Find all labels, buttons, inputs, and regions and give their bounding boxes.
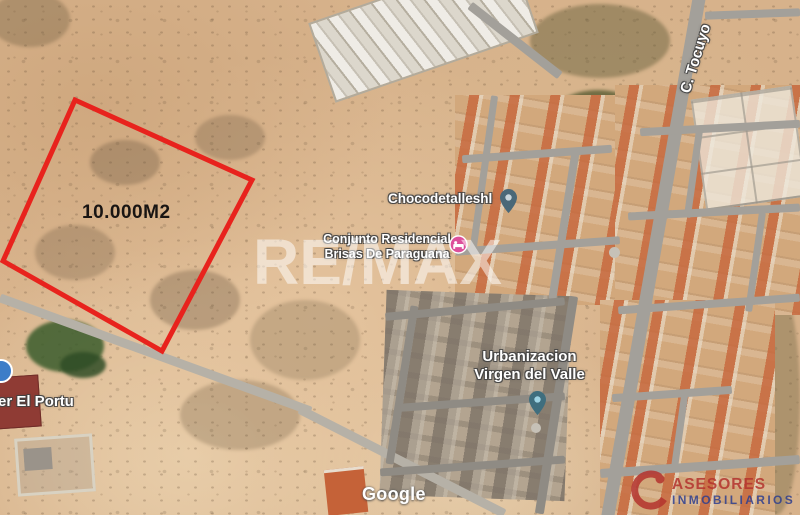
roundabout <box>609 247 620 258</box>
place-label-urbanizacion[interactable]: Urbanizacion Virgen del Valle <box>462 348 597 384</box>
agency-name-line1: ASESORES <box>672 477 795 493</box>
scrub-patch <box>35 225 115 280</box>
place-circle-icon[interactable] <box>0 358 14 384</box>
place-label-el-portu[interactable]: er El Portu <box>0 393 74 410</box>
industrial-lots <box>691 85 800 210</box>
scrub-patch <box>195 115 265 160</box>
satellite-map[interactable]: 10.000M2 RE/MAX Chocodetalleshl Conjunto… <box>0 0 800 515</box>
agency-name-line2: INMOBILIARIOS <box>672 493 795 507</box>
place-label-line2: Virgen del Valle <box>462 366 597 384</box>
agency-logo-text: ASESORES INMOBILIARIOS <box>672 477 795 507</box>
scrub-patch <box>90 140 160 185</box>
agency-logo-arc-icon <box>628 468 668 514</box>
place-pin-icon[interactable] <box>500 188 517 214</box>
google-logo: Google <box>362 484 426 505</box>
scrub-patch <box>180 380 300 450</box>
scrub-patch <box>250 300 360 380</box>
parcel-area-label: 10.000M2 <box>82 202 171 224</box>
vegetation-patch <box>60 352 106 378</box>
agency-logo: ASESORES INMOBILIARIOS <box>628 468 795 514</box>
place-pin-icon[interactable] <box>529 390 546 416</box>
scrub-patch <box>150 270 240 330</box>
compound-building <box>23 447 52 471</box>
place-label-line1: Urbanizacion <box>462 348 597 366</box>
place-label-chocodetalleshl[interactable]: Chocodetalleshl <box>388 191 492 206</box>
roundabout <box>531 423 541 433</box>
remax-watermark: RE/MAX <box>253 230 502 294</box>
